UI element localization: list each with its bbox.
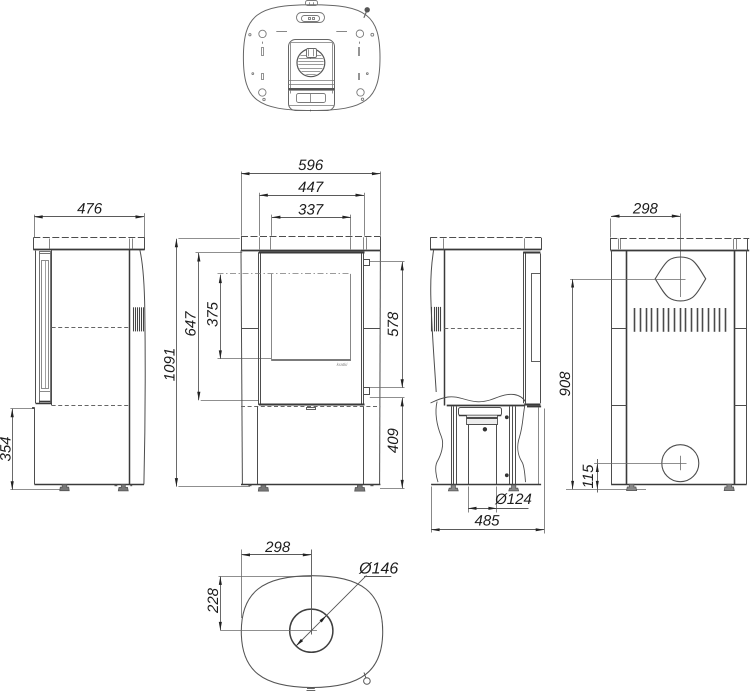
svg-text:228: 228 — [205, 587, 222, 614]
svg-text:337: 337 — [298, 201, 324, 218]
svg-text:115: 115 — [580, 464, 597, 489]
svg-text:Ø146: Ø146 — [358, 560, 398, 577]
svg-text:596: 596 — [298, 157, 324, 174]
svg-text:578: 578 — [385, 311, 402, 337]
svg-text:485: 485 — [474, 513, 500, 530]
svg-text:447: 447 — [298, 179, 324, 196]
svg-text:354: 354 — [0, 436, 14, 461]
svg-text:kratki: kratki — [337, 362, 349, 367]
svg-text:908: 908 — [557, 371, 574, 397]
svg-text:1091: 1091 — [161, 348, 178, 381]
svg-text:647: 647 — [182, 311, 199, 337]
svg-text:Ø124: Ø124 — [494, 491, 532, 508]
svg-text:298: 298 — [264, 539, 291, 556]
svg-text:375: 375 — [204, 301, 221, 327]
svg-text:298: 298 — [632, 200, 659, 217]
svg-text:409: 409 — [385, 427, 402, 453]
svg-text:476: 476 — [77, 200, 103, 217]
